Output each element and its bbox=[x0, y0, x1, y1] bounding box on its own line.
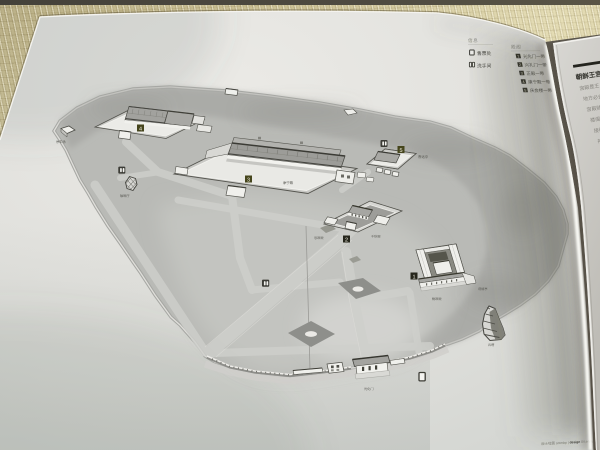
svg-text:光化门: 光化门 bbox=[364, 387, 374, 391]
svg-text:观德亭: 观德亭 bbox=[478, 287, 488, 291]
svg-text:信息: 信息 bbox=[468, 38, 478, 43]
svg-text:2: 2 bbox=[345, 237, 348, 243]
svg-text:3: 3 bbox=[247, 177, 250, 183]
svg-text:咖啡厅: 咖啡厅 bbox=[120, 194, 130, 198]
svg-text:4: 4 bbox=[139, 126, 142, 132]
svg-text:香远亭: 香远亭 bbox=[418, 155, 429, 159]
svg-text:1: 1 bbox=[412, 274, 415, 280]
svg-text:停车场: 停车场 bbox=[56, 140, 66, 144]
svg-text:5: 5 bbox=[399, 148, 402, 154]
svg-text:勤政殿: 勤政殿 bbox=[432, 297, 442, 301]
svg-text:康宁殿: 康宁殿 bbox=[283, 181, 294, 185]
svg-text:思政殿: 思政殿 bbox=[314, 236, 324, 240]
svg-text:石塔: 石塔 bbox=[488, 343, 495, 347]
svg-text:千秋殿: 千秋殿 bbox=[371, 235, 381, 239]
